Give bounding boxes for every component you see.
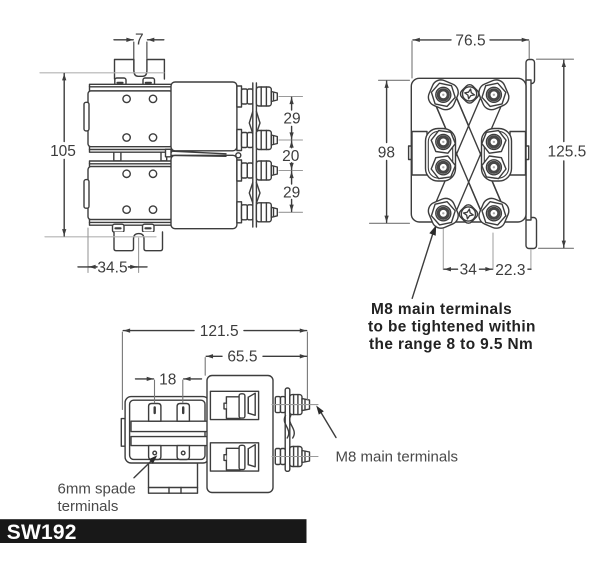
svg-text:34: 34 [460,262,478,279]
svg-text:76.5: 76.5 [455,32,485,49]
svg-text:22.3: 22.3 [495,262,525,279]
svg-text:105: 105 [50,143,76,160]
svg-text:65.5: 65.5 [227,349,257,366]
svg-text:98: 98 [378,144,395,161]
svg-text:terminals: terminals [58,498,119,515]
svg-text:29: 29 [283,184,300,201]
svg-text:121.5: 121.5 [200,323,239,340]
svg-text:20: 20 [282,148,300,165]
svg-text:34.5: 34.5 [97,259,127,276]
svg-text:the range 8 to 9.5 Nm: the range 8 to 9.5 Nm [369,336,533,353]
svg-text:7: 7 [135,31,144,48]
svg-text:M8 main terminals: M8 main terminals [336,449,459,466]
svg-text:SW192: SW192 [7,521,77,544]
svg-text:29: 29 [283,111,300,128]
svg-text:6mm spade: 6mm spade [58,481,136,498]
svg-text:125.5: 125.5 [548,144,587,161]
svg-text:18: 18 [159,371,176,388]
svg-text:to be tightened within: to be tightened within [368,319,536,336]
svg-text:M8 main terminals: M8 main terminals [371,301,512,318]
